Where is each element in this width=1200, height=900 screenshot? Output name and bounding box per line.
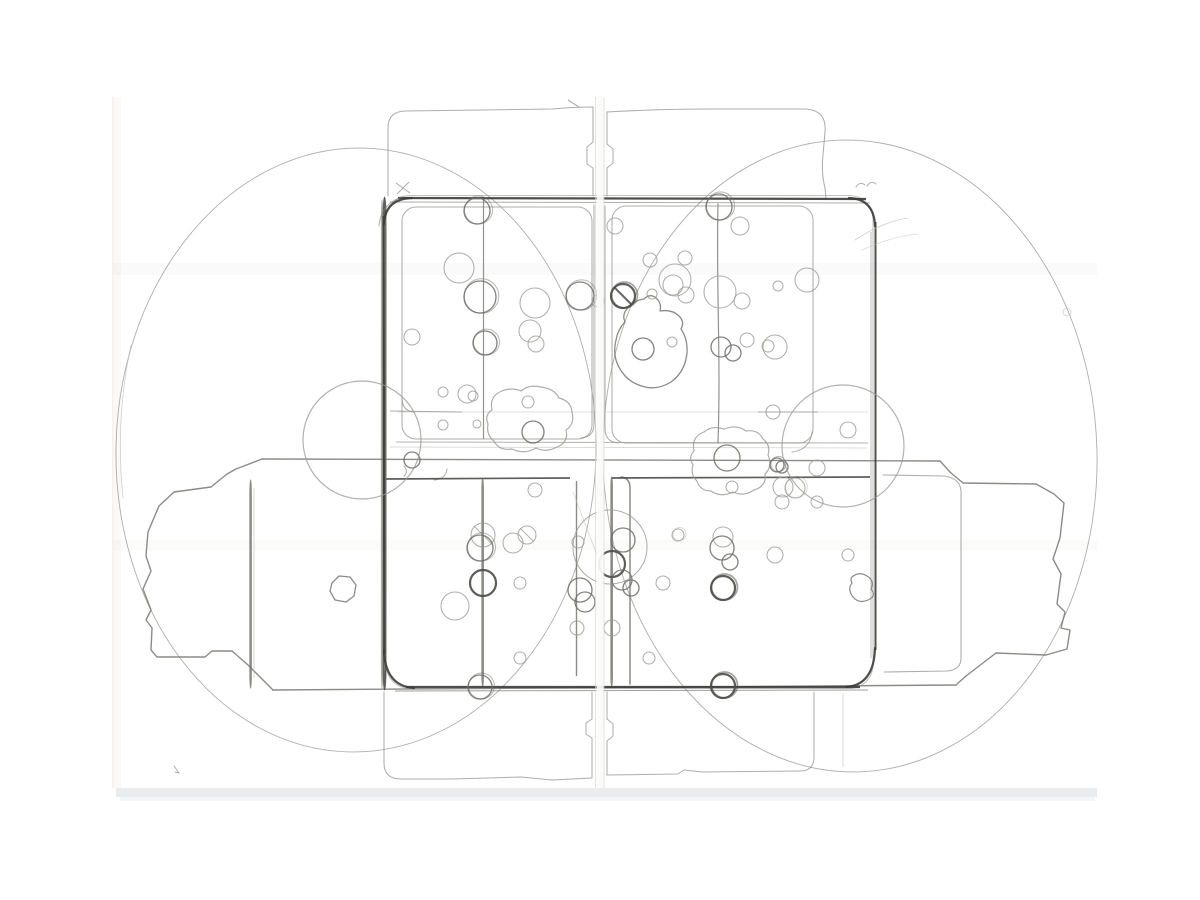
bubble-circle <box>656 576 670 590</box>
bubble-circle-sketch-pass <box>474 329 500 355</box>
bubble-circle <box>303 381 421 499</box>
tab-bottom-right <box>607 692 814 775</box>
bubble-circle <box>840 422 856 438</box>
bubble-circle-sketch-pass <box>712 672 738 698</box>
box-left-heavy <box>384 216 385 654</box>
tab-bottom-left <box>384 692 592 780</box>
layer-big-ellipses <box>108 134 1105 779</box>
bubble-circle <box>714 445 740 471</box>
stray-mark-bottom-left <box>174 766 179 773</box>
layer-guides <box>390 199 868 480</box>
tab-top-left <box>388 107 593 196</box>
bubble-circle-sketch-pass <box>464 279 499 314</box>
bubble-circle <box>726 481 738 493</box>
bubble-circle <box>514 577 526 589</box>
bubble-circle <box>528 336 544 352</box>
bubble-circle <box>514 652 526 664</box>
inner-rect-lower-midleft <box>482 479 483 686</box>
bubble-circle <box>458 385 476 403</box>
scan-shadow-bottom <box>116 788 1097 797</box>
bubble-circle-sketch-pass <box>612 282 638 308</box>
bubble-circle <box>568 578 592 602</box>
bubble-circle <box>643 652 655 664</box>
scan-streak-lower <box>113 540 1097 550</box>
scan-shadow-bottom-soft <box>120 797 1095 801</box>
bubble-circle <box>734 293 750 309</box>
bubble-circle <box>522 421 544 443</box>
bubble-circle <box>782 385 904 507</box>
large-ellipse-right <box>595 134 1105 779</box>
box-top-double <box>390 202 870 203</box>
bubble-circle <box>647 289 657 299</box>
band-torn-left-end <box>143 459 272 689</box>
bubble-circle-sketch-pass <box>712 574 738 600</box>
bubble-circle <box>438 420 448 430</box>
bubble-circle <box>441 592 469 620</box>
bubble-circle <box>468 391 478 401</box>
bubble-circle <box>763 335 787 359</box>
bubble-circle <box>607 218 623 234</box>
bubble-circle <box>725 345 741 361</box>
tab-top-right <box>607 109 826 199</box>
bubble-circle <box>522 396 534 408</box>
inner-rect-upper-left <box>402 207 592 439</box>
bubble-circle <box>473 331 497 355</box>
pencil-sketch-svg <box>0 0 1200 900</box>
bubble-circle <box>731 217 749 235</box>
bubble-circle <box>438 387 448 397</box>
bubble-circle <box>632 338 654 360</box>
box-top-heavy <box>398 198 866 199</box>
band-torn-right-end <box>940 461 1070 684</box>
band-h478-dark-left <box>385 478 570 479</box>
stray-squiggle-cs <box>856 182 876 187</box>
bubble-circle-sketch-pass <box>786 476 808 498</box>
layer-strays <box>174 100 876 773</box>
band-inner-rect-right <box>883 475 961 672</box>
stray-x-mark-2 <box>397 182 409 194</box>
bubble-circle <box>473 420 481 428</box>
bubble-slash-mark <box>614 287 632 305</box>
corner-hatch-tr-2 <box>862 234 918 250</box>
page-fold-gap <box>597 97 604 788</box>
page-left-highlight <box>113 97 121 788</box>
bubble-circle <box>773 281 783 291</box>
bubble-circle <box>667 337 677 347</box>
bubble-circle-sketch-pass <box>464 196 492 224</box>
stray-hook <box>404 466 407 476</box>
bubble-circle <box>809 460 825 476</box>
bubble-circle <box>663 275 683 295</box>
bubble-circle <box>623 580 639 596</box>
band-inner-rect-left <box>250 480 251 688</box>
layer-band <box>143 459 1070 690</box>
bubble-circle <box>404 329 420 345</box>
inner-rect-upper-right <box>612 206 813 443</box>
box-pass-sketch2 <box>382 200 383 688</box>
bubble-circle <box>678 251 692 265</box>
scanned-sketch-page <box>0 0 1200 900</box>
bubble-circle <box>773 477 793 497</box>
layer-fold <box>596 97 605 788</box>
divider-upper-x718 <box>718 204 719 443</box>
hex-blob-left-band <box>330 576 356 602</box>
band-h478-dark-right <box>612 477 870 478</box>
bubble-circle <box>520 288 550 318</box>
guide-h447 <box>390 447 866 448</box>
bubble-circle <box>740 333 754 347</box>
squiggle-blob-right-edge <box>850 574 874 602</box>
corner-attempt-ur <box>792 432 812 452</box>
bubble-circle <box>704 276 736 308</box>
box-bottom-double <box>395 690 868 691</box>
large-ellipse-left <box>108 142 604 758</box>
stray-tick-top-fold <box>568 100 579 107</box>
bubble-circle <box>842 549 854 561</box>
bubble-circle <box>528 483 542 497</box>
bubble-circle <box>811 496 823 508</box>
box-corner-tr-heavy <box>849 198 875 226</box>
box-corner-bl-heavy <box>384 650 414 688</box>
